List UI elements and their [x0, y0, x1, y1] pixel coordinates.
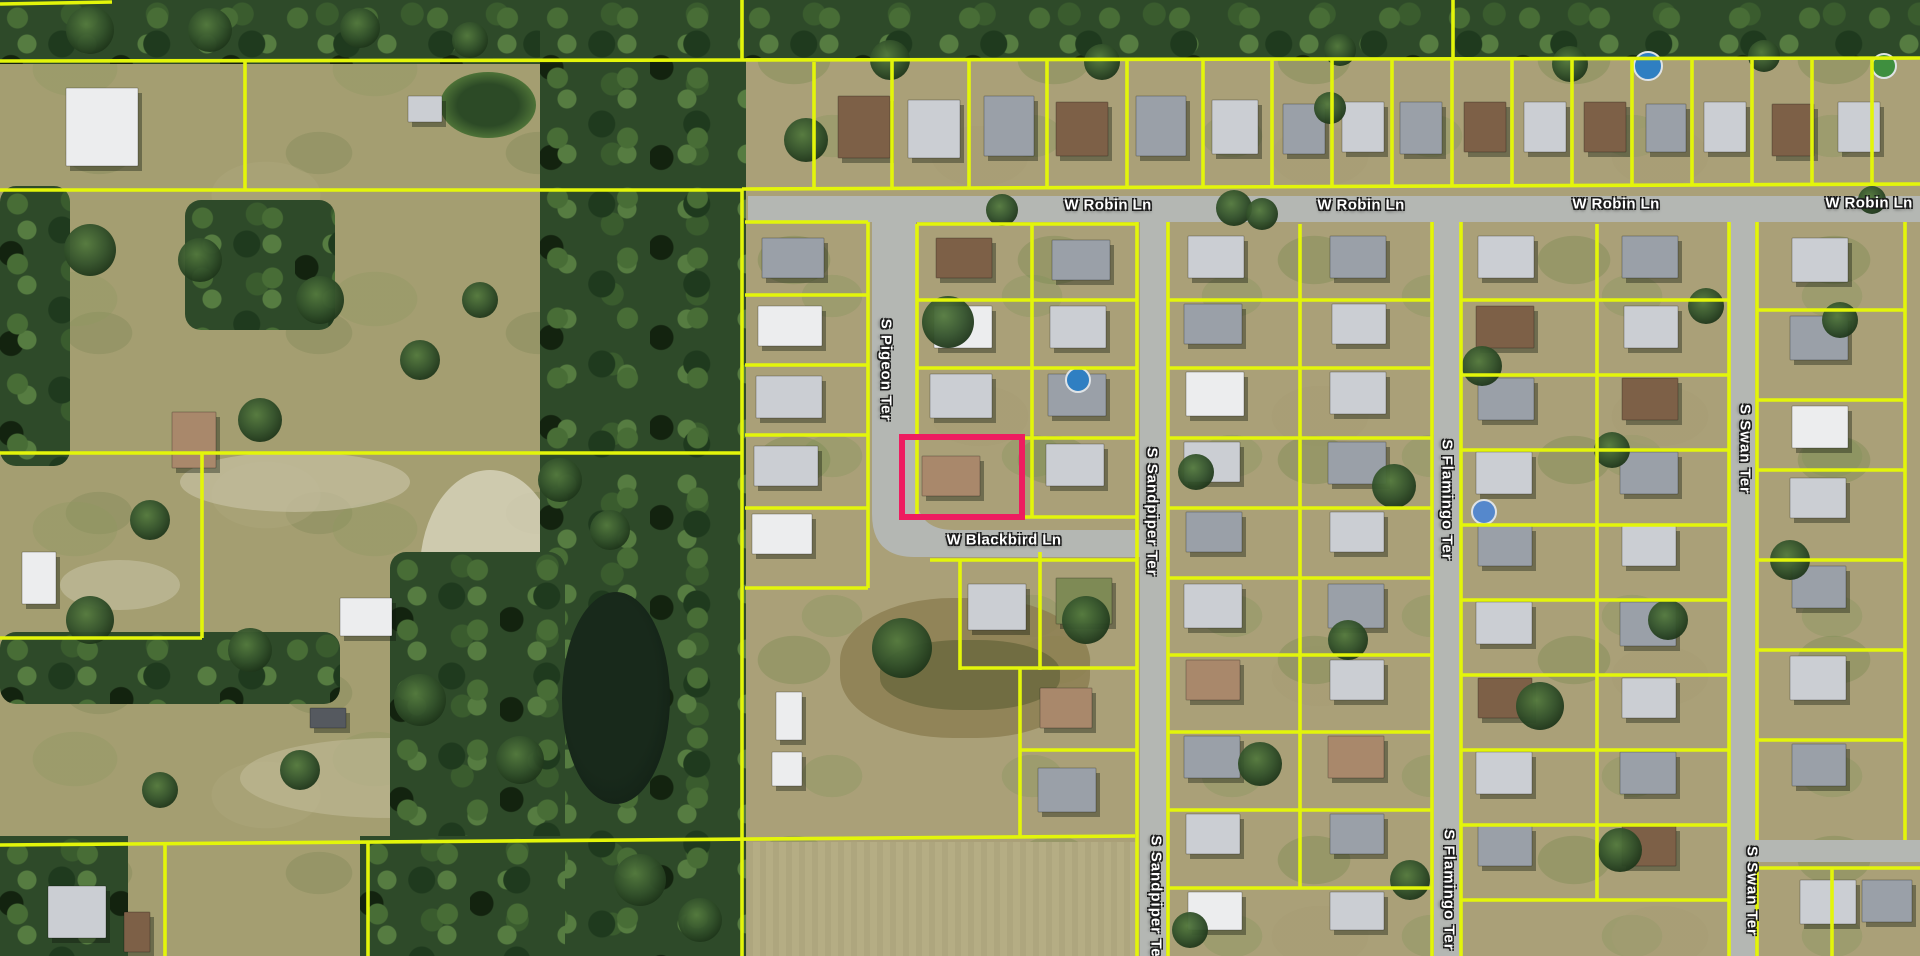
- house: [1622, 378, 1678, 420]
- house: [1704, 102, 1746, 152]
- tree-canopy: [1216, 190, 1252, 226]
- street-label-s-pigeon-ter: S Pigeon Ter: [878, 319, 895, 422]
- parcel-boundary: [742, 58, 1920, 60]
- tree-canopy: [1648, 600, 1688, 640]
- tree-canopy: [986, 194, 1018, 226]
- tree-canopy: [1688, 288, 1724, 324]
- house: [1478, 236, 1534, 278]
- house: [1050, 306, 1106, 348]
- house: [1330, 892, 1384, 930]
- house: [930, 374, 992, 418]
- house: [1212, 100, 1258, 154]
- street-label-w-robin-ln-4: W Robin Ln: [1825, 195, 1912, 212]
- house: [1184, 736, 1240, 778]
- house: [48, 886, 106, 938]
- house: [1478, 826, 1532, 866]
- pool: [1066, 368, 1090, 392]
- house: [1184, 304, 1242, 344]
- house: [1790, 656, 1846, 700]
- tree-canopy: [142, 772, 178, 808]
- tree-canopy: [1462, 346, 1502, 386]
- house: [172, 412, 216, 468]
- tree-canopy: [872, 618, 932, 678]
- house: [1328, 584, 1384, 628]
- house: [1186, 372, 1244, 416]
- tree-canopy: [590, 510, 630, 550]
- tree-canopy: [1390, 860, 1430, 900]
- tree-canopy: [188, 8, 232, 52]
- pool: [1634, 52, 1662, 80]
- house: [1790, 478, 1846, 518]
- house: [1476, 452, 1532, 494]
- road-cross-street-east: [1755, 840, 1920, 862]
- street-label-w-blackbird-ln: W Blackbird Ln: [947, 532, 1062, 549]
- parcel-boundary: [0, 60, 742, 61]
- tree-canopy: [1372, 464, 1416, 508]
- parcel-boundary: [0, 836, 1135, 845]
- house: [1342, 102, 1384, 152]
- house: [1184, 584, 1242, 628]
- house: [1186, 814, 1240, 854]
- house: [1186, 660, 1240, 700]
- tree-canopy: [296, 276, 344, 324]
- house: [1476, 602, 1532, 644]
- house: [758, 306, 822, 346]
- street-label-s-sandpiper-ter-2: S Sandpiper Ter: [1148, 836, 1165, 956]
- street-label-s-swan-ter-1: S Swan Ter: [1737, 404, 1754, 494]
- house: [1792, 744, 1846, 786]
- house: [838, 96, 890, 158]
- house: [1622, 526, 1676, 566]
- street-label-w-robin-ln-2: W Robin Ln: [1317, 197, 1404, 214]
- house: [1800, 880, 1856, 924]
- house: [908, 100, 960, 158]
- house: [1056, 102, 1108, 156]
- tree-canopy: [1062, 596, 1110, 644]
- house: [310, 708, 346, 728]
- tree-canopy: [922, 296, 974, 348]
- house: [1186, 512, 1242, 552]
- tree-canopy: [1178, 454, 1214, 490]
- house: [1330, 512, 1384, 552]
- tree-canopy: [64, 224, 116, 276]
- tree-canopy: [1238, 742, 1282, 786]
- tree-canopy: [238, 398, 282, 442]
- house: [1476, 306, 1534, 348]
- tree-canopy: [400, 340, 440, 380]
- parcel-map-canvas[interactable]: W Robin Ln W Robin Ln W Robin Ln W Robin…: [0, 0, 1920, 956]
- map-overlay: [0, 0, 1920, 956]
- tree-canopy: [452, 22, 488, 58]
- house: [968, 584, 1026, 630]
- house: [1620, 752, 1676, 794]
- house: [1052, 240, 1110, 280]
- house: [1328, 736, 1384, 778]
- street-label-s-sandpiper-ter-1: S Sandpiper Ter: [1144, 448, 1161, 577]
- house: [776, 692, 802, 740]
- house: [1524, 102, 1566, 152]
- house: [1332, 304, 1386, 344]
- house: [754, 446, 818, 486]
- tree-canopy: [1552, 46, 1588, 82]
- tree-canopy: [496, 736, 544, 784]
- tree-canopy: [1172, 912, 1208, 948]
- house: [1584, 102, 1626, 152]
- house: [1862, 880, 1912, 922]
- tree-canopy: [1084, 44, 1120, 80]
- house: [1478, 526, 1532, 566]
- house: [1464, 102, 1506, 152]
- house: [984, 96, 1034, 156]
- house: [1620, 452, 1678, 494]
- tree-canopy: [1598, 828, 1642, 872]
- house: [408, 96, 442, 122]
- tree-canopy: [1246, 198, 1278, 230]
- house: [1622, 678, 1676, 718]
- tree-canopy: [462, 282, 498, 318]
- house: [1040, 688, 1092, 728]
- pool: [1472, 500, 1496, 524]
- tree-canopy: [1516, 682, 1564, 730]
- street-label-s-swan-ter-2: S Swan Ter: [1744, 846, 1761, 936]
- house: [1330, 372, 1386, 414]
- house: [1330, 236, 1386, 278]
- house: [1624, 306, 1678, 348]
- house: [1188, 236, 1244, 278]
- house: [1476, 752, 1532, 794]
- house: [1792, 238, 1848, 282]
- house: [756, 376, 822, 418]
- house: [124, 912, 150, 952]
- tree-canopy: [66, 6, 114, 54]
- house: [922, 456, 980, 496]
- house: [1792, 406, 1848, 448]
- tree-canopy: [228, 628, 272, 672]
- house: [66, 88, 138, 166]
- house: [1772, 104, 1814, 156]
- tree-canopy: [784, 118, 828, 162]
- house: [1136, 96, 1186, 156]
- street-label-s-flamingo-ter-1: S Flamingo Ter: [1439, 439, 1456, 560]
- house: [1038, 768, 1096, 812]
- house: [936, 238, 992, 278]
- house: [22, 552, 56, 604]
- tree-canopy: [394, 674, 446, 726]
- house: [1400, 102, 1442, 154]
- tree-canopy: [340, 8, 380, 48]
- house: [1622, 236, 1678, 278]
- house: [772, 752, 802, 786]
- tree-canopy: [280, 750, 320, 790]
- tree-canopy: [614, 854, 666, 906]
- house: [1646, 104, 1686, 152]
- house: [1330, 660, 1384, 700]
- tree-canopy: [1822, 302, 1858, 338]
- tree-canopy: [178, 238, 222, 282]
- tree-canopy: [1314, 92, 1346, 124]
- house: [762, 238, 824, 278]
- house: [752, 514, 812, 554]
- tree-canopy: [1324, 34, 1356, 66]
- tree-canopy: [538, 458, 582, 502]
- parcel-boundary: [0, 2, 112, 4]
- house: [1330, 814, 1384, 854]
- street-label-s-flamingo-ter-2: S Flamingo Ter: [1441, 829, 1458, 950]
- street-label-w-robin-ln-1: W Robin Ln: [1064, 197, 1151, 214]
- house: [1046, 444, 1104, 486]
- tree-canopy: [678, 898, 722, 942]
- house: [340, 598, 392, 636]
- street-label-w-robin-ln-3: W Robin Ln: [1572, 196, 1659, 213]
- tree-canopy: [130, 500, 170, 540]
